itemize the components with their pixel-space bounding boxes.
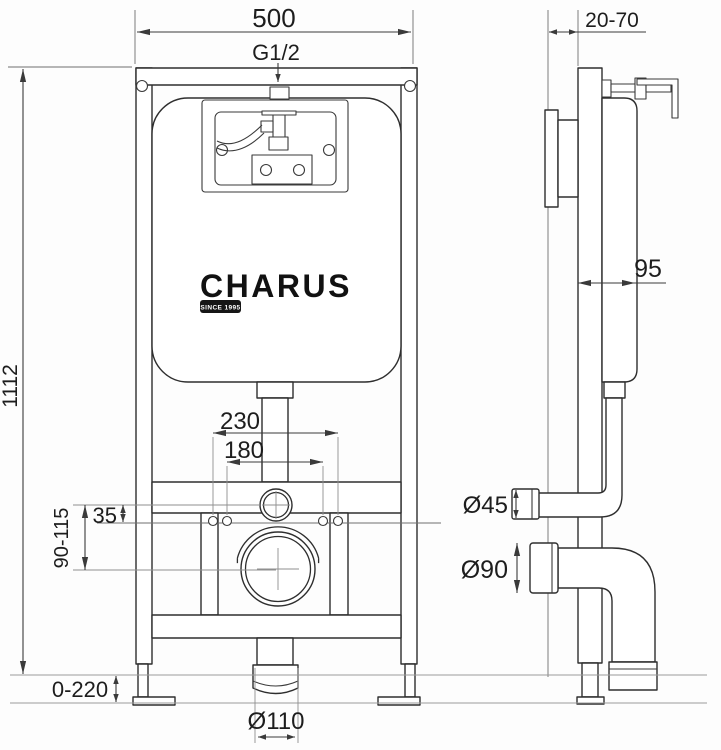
dim-flush-pipe-diameter: Ø45	[463, 492, 508, 519]
leg-left	[138, 664, 148, 697]
dim-frame-width: 500	[252, 3, 295, 33]
dim-fixing-inner: 180	[224, 437, 264, 464]
brand-logo: CHARUS	[200, 268, 352, 304]
top-hole-left	[137, 81, 148, 92]
plate-hole-left	[261, 165, 272, 176]
dim-inlet-thread: G1/2	[252, 40, 300, 65]
frame-top-bar	[136, 68, 417, 85]
water-inlet-fitting	[270, 87, 289, 99]
drain-pipe-socket	[530, 543, 558, 593]
dim-wall-distance: 20-70	[585, 9, 639, 32]
side-cistern	[602, 98, 637, 382]
side-flush-fitting	[604, 382, 625, 398]
foot-left	[133, 697, 175, 705]
side-leg	[582, 663, 598, 697]
fixing-hole-inner-right	[319, 517, 328, 526]
cross-member-lower	[152, 615, 401, 638]
dim-fixing-outer: 230	[220, 408, 260, 435]
fixing-hole-inner-left	[223, 517, 232, 526]
plate-hole-right	[294, 165, 305, 176]
fixing-hole-outer-left	[209, 517, 218, 526]
outlet-socket	[253, 665, 298, 694]
frame-rail-left	[136, 68, 152, 664]
leg-right	[405, 664, 415, 697]
dim-drain-pipe-diameter: Ø90	[461, 556, 508, 584]
dim-frame-height: 1112	[0, 364, 22, 408]
top-hole-right	[405, 81, 416, 92]
front-view: CHARUS SINCE 1995	[73, 68, 441, 705]
flush-pipe	[262, 398, 288, 482]
dim-outlet-diameter: Ø110	[248, 708, 305, 735]
panel-hole-right	[324, 145, 335, 156]
access-shaft-front	[545, 110, 558, 207]
dim-center-offset: 35	[93, 503, 117, 528]
flush-pipe-fitting	[257, 382, 293, 398]
outlet-pipe	[257, 638, 293, 665]
installation-frame-drawing: CHARUS SINCE 1995	[0, 0, 721, 750]
dim-flush-pipe-height: 90-115	[51, 508, 73, 569]
technical-drawing-page: CHARUS SINCE 1995	[0, 0, 721, 750]
dim-leg-adjustment: 0-220	[52, 677, 108, 702]
brand-badge-label: SINCE 1995	[200, 305, 240, 312]
strut-right	[330, 513, 348, 615]
strut-left	[201, 513, 218, 615]
side-view	[512, 10, 678, 704]
access-shaft-back	[558, 120, 578, 197]
fixing-hole-outer-right	[334, 517, 343, 526]
frame-rail-right	[401, 68, 417, 664]
dim-frame-depth: 95	[634, 255, 662, 283]
side-outlet-socket	[609, 662, 657, 690]
side-drain-elbow	[558, 548, 655, 662]
foot-right	[378, 697, 420, 705]
